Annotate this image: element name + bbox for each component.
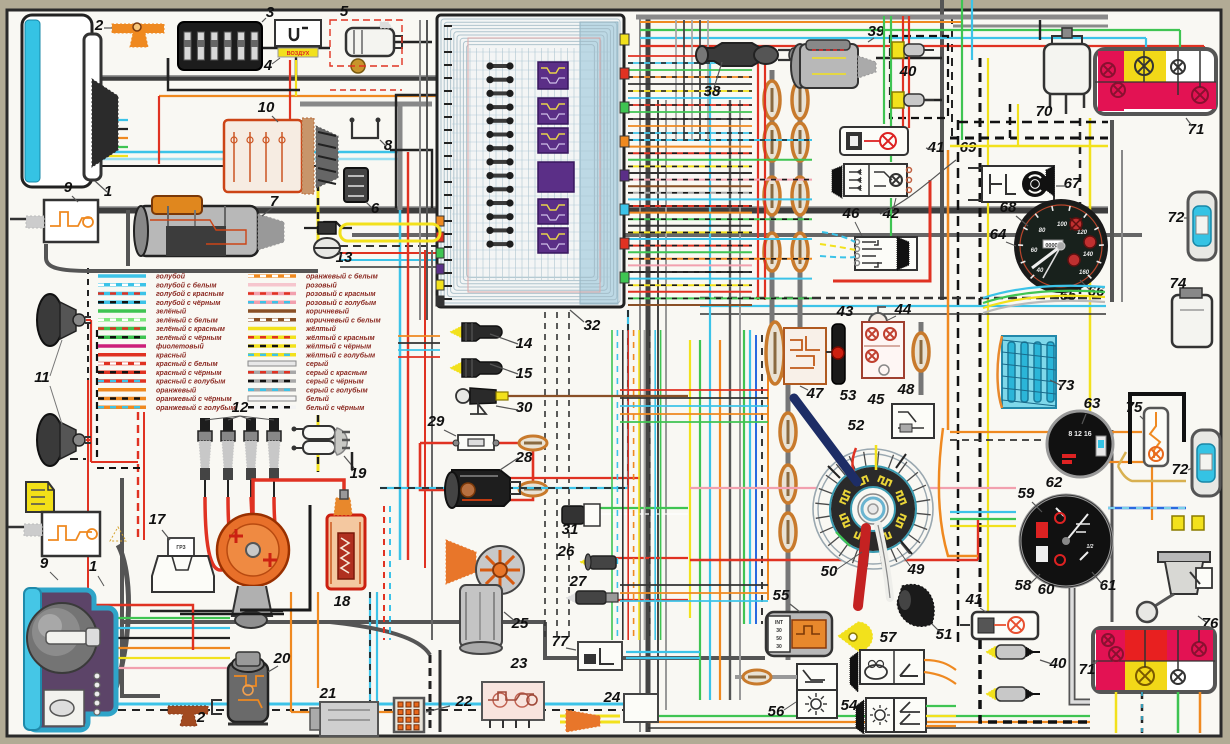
- svg-text:50: 50: [776, 636, 782, 642]
- svg-text:17: 17: [149, 511, 166, 528]
- svg-text:32: 32: [584, 317, 601, 334]
- svg-text:зелёный с красным: зелёный с красным: [156, 325, 226, 333]
- svg-text:розовый с красным: розовый с красным: [305, 290, 376, 298]
- svg-text:серый: серый: [306, 360, 329, 368]
- svg-text:серый с чёрным: серый с чёрным: [306, 378, 365, 386]
- svg-text:оранжевый с белым: оранжевый с белым: [306, 273, 379, 281]
- svg-text:зелёный: зелёный: [156, 308, 187, 316]
- svg-text:оранжевый: оранжевый: [156, 386, 197, 394]
- svg-text:72: 72: [1172, 461, 1189, 478]
- svg-text:оранжевый с голубым: оранжевый с голубым: [156, 404, 236, 412]
- svg-text:80: 80: [1039, 228, 1046, 234]
- svg-text:75: 75: [1126, 399, 1143, 416]
- svg-text:ВОЗДУХ: ВОЗДУХ: [287, 51, 310, 57]
- svg-text:30: 30: [776, 628, 782, 634]
- svg-text:18: 18: [334, 593, 351, 610]
- svg-text:серый с красным: серый с красным: [306, 369, 368, 377]
- svg-text:розовый с голубым: розовый с голубым: [305, 299, 377, 307]
- svg-text:15: 15: [516, 365, 533, 382]
- svg-text:160: 160: [1079, 270, 1090, 276]
- svg-text:40: 40: [1036, 268, 1044, 274]
- svg-text:красный с белым: красный с белым: [156, 360, 219, 368]
- svg-text:77: 77: [552, 633, 569, 650]
- svg-text:голубой: голубой: [156, 273, 186, 281]
- svg-text:ГРЗ: ГРЗ: [176, 545, 185, 551]
- svg-text:голубой с чёрным: голубой с чёрным: [156, 299, 221, 307]
- svg-text:45: 45: [867, 391, 885, 408]
- svg-text:100: 100: [1057, 222, 1068, 228]
- svg-text:21: 21: [319, 685, 337, 702]
- svg-text:44: 44: [894, 301, 912, 318]
- svg-text:29: 29: [427, 413, 445, 430]
- svg-text:2: 2: [94, 17, 104, 34]
- svg-text:красный с голубым: красный с голубым: [156, 378, 226, 386]
- svg-text:48: 48: [897, 381, 915, 398]
- svg-text:41: 41: [965, 591, 983, 608]
- svg-text:оранжевый с чёрным: оранжевый с чёрным: [156, 395, 232, 403]
- svg-text:23: 23: [510, 655, 528, 672]
- svg-text:41: 41: [927, 139, 945, 156]
- svg-text:52: 52: [848, 417, 865, 434]
- svg-text:9: 9: [40, 555, 49, 572]
- svg-text:67: 67: [1064, 175, 1081, 192]
- svg-text:красный с чёрным: красный с чёрным: [156, 369, 222, 377]
- svg-text:27: 27: [569, 573, 587, 590]
- svg-text:60: 60: [1038, 581, 1055, 598]
- svg-text:зелёный с белым: зелёный с белым: [156, 316, 219, 324]
- svg-text:40: 40: [899, 63, 917, 80]
- svg-text:1: 1: [104, 183, 112, 200]
- svg-text:жёлтый с красным: жёлтый с красным: [305, 334, 375, 342]
- svg-text:14: 14: [516, 335, 533, 352]
- svg-text:30: 30: [776, 644, 782, 650]
- svg-text:7: 7: [270, 193, 279, 210]
- svg-text:60: 60: [1031, 248, 1038, 254]
- svg-text:28: 28: [515, 449, 533, 466]
- svg-text:фиолетовый: фиолетовый: [156, 343, 205, 351]
- svg-text:43: 43: [836, 303, 854, 320]
- svg-text:61: 61: [1100, 577, 1117, 594]
- svg-text:белый с чёрным: белый с чёрным: [306, 404, 365, 412]
- svg-text:59: 59: [1018, 485, 1035, 502]
- svg-text:39: 39: [868, 23, 885, 40]
- svg-text:20: 20: [273, 650, 291, 667]
- svg-text:58: 58: [1015, 577, 1032, 594]
- svg-text:51: 51: [936, 626, 953, 643]
- svg-text:3: 3: [266, 4, 275, 21]
- svg-text:68: 68: [1000, 199, 1017, 216]
- svg-text:красный: красный: [156, 351, 187, 359]
- svg-text:69: 69: [960, 139, 977, 156]
- svg-text:жёлтый с чёрным: жёлтый с чёрным: [305, 343, 372, 351]
- svg-text:9: 9: [64, 179, 73, 196]
- svg-text:24: 24: [603, 689, 621, 706]
- svg-text:жёлтый с голубым: жёлтый с голубым: [305, 351, 376, 359]
- svg-text:26: 26: [557, 543, 575, 560]
- svg-text:49: 49: [907, 561, 925, 578]
- svg-text:коричневый с белым: коричневый с белым: [306, 316, 381, 324]
- svg-text:INT: INT: [775, 620, 783, 626]
- svg-text:55: 55: [773, 587, 790, 604]
- svg-text:5: 5: [340, 3, 349, 20]
- svg-text:50: 50: [821, 563, 838, 580]
- svg-text:31: 31: [562, 521, 579, 538]
- svg-text:120: 120: [1077, 230, 1088, 236]
- svg-text:голубой с белым: голубой с белым: [156, 281, 217, 289]
- svg-text:8 12 16: 8 12 16: [1068, 431, 1091, 438]
- svg-text:6: 6: [371, 200, 380, 217]
- svg-text:63: 63: [1084, 395, 1101, 412]
- svg-text:12: 12: [232, 399, 249, 416]
- svg-text:11: 11: [34, 369, 50, 386]
- svg-text:30: 30: [516, 399, 533, 416]
- svg-text:13: 13: [336, 249, 353, 266]
- svg-text:1: 1: [89, 558, 97, 575]
- svg-text:белый: белый: [306, 395, 330, 403]
- svg-text:коричневый: коричневый: [306, 308, 350, 316]
- svg-text:зелёный с чёрным: зелёный с чёрным: [156, 334, 222, 342]
- svg-text:47: 47: [806, 385, 824, 402]
- svg-text:53: 53: [840, 387, 857, 404]
- svg-text:64: 64: [990, 226, 1007, 243]
- svg-text:56: 56: [768, 703, 785, 720]
- svg-text:голубой с красным: голубой с красным: [156, 290, 225, 298]
- svg-text:62: 62: [1046, 474, 1063, 491]
- svg-text:140: 140: [1083, 252, 1094, 258]
- svg-text:70: 70: [1036, 103, 1053, 120]
- svg-text:42: 42: [882, 205, 900, 222]
- svg-text:46: 46: [842, 205, 860, 222]
- svg-text:розовый: розовый: [305, 281, 338, 289]
- svg-text:22: 22: [455, 693, 473, 710]
- svg-text:54: 54: [841, 697, 858, 714]
- svg-text:жёлтый: жёлтый: [305, 325, 337, 333]
- svg-text:72: 72: [1168, 209, 1185, 226]
- svg-text:25: 25: [511, 615, 529, 632]
- svg-text:10: 10: [258, 99, 275, 116]
- svg-text:71: 71: [1079, 661, 1096, 678]
- svg-text:серый с голубым: серый с голубым: [306, 386, 368, 394]
- svg-text:57: 57: [880, 629, 897, 646]
- svg-text:74: 74: [1170, 275, 1187, 292]
- svg-text:38: 38: [704, 83, 721, 100]
- svg-text:2: 2: [196, 709, 206, 726]
- svg-text:1/2: 1/2: [1087, 544, 1094, 550]
- svg-text:4: 4: [263, 57, 273, 74]
